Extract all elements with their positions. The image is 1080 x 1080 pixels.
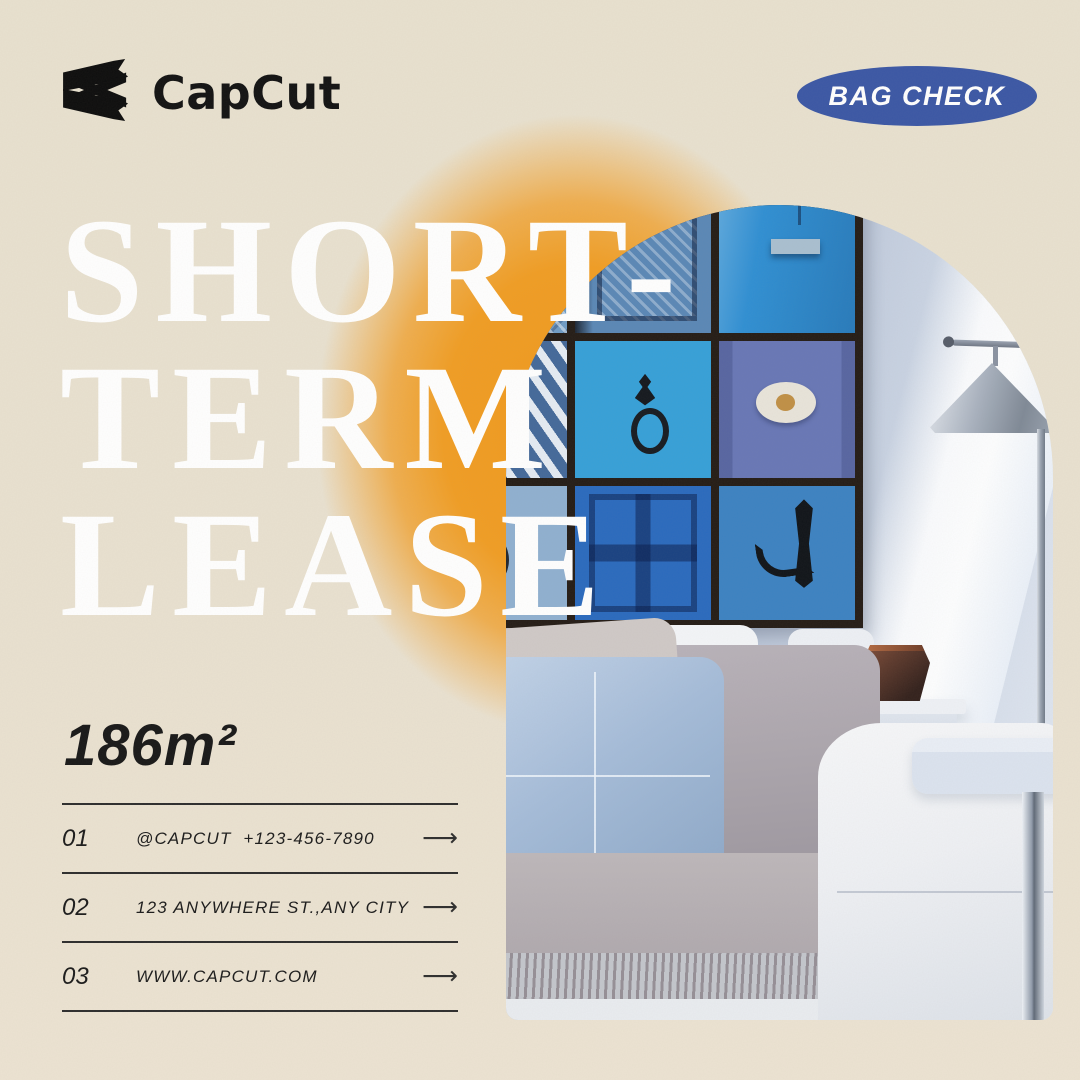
contact-handle-phone: @CAPCUT +123-456-7890 [136,829,422,849]
arrow-right-icon: ⟶ [422,961,458,991]
headline-line-2: TERM [60,345,688,492]
row-number: 03 [62,963,136,991]
arrow-right-icon: ⟶ [422,823,458,853]
contact-row: 03 WWW.CAPCUT.COM ⟶ [62,941,458,1010]
capcut-logo-icon [60,58,136,127]
headline: SHORT- TERM LEASE [60,198,688,639]
contact-address: 123 ANYWHERE ST.,ANY CITY [136,898,422,918]
contact-website: WWW.CAPCUT.COM [136,967,422,987]
area-value: 186m² [64,712,237,779]
row-number: 01 [62,825,136,853]
capcut-logo: CapCut [60,58,341,127]
poster-canvas: CapCut BAG CHECK SHORT- TERM LEASE 186m² [0,0,1080,1080]
contact-row: 02 123 ANYWHERE ST.,ANY CITY ⟶ [62,872,458,941]
contact-list: 01 @CAPCUT +123-456-7890 ⟶ 02 123 ANYWHE… [62,803,458,1012]
door-tile-handle [719,486,855,620]
door-tile-plate [719,341,855,478]
contact-row: 01 @CAPCUT +123-456-7890 ⟶ [62,803,458,872]
bag-check-badge: BAG CHECK [797,66,1037,126]
floating-table [912,738,1053,794]
row-number: 02 [62,894,136,922]
table-chrome-leg [1022,792,1044,1020]
headline-line-1: SHORT- [60,198,688,345]
floor-lamp-stem [993,346,998,366]
arrow-right-icon: ⟶ [422,892,458,922]
bag-check-badge-label: BAG CHECK [828,81,1005,112]
headline-line-3: LEASE [60,492,688,639]
door-tile-metal [719,205,855,333]
capcut-wordmark: CapCut [152,66,341,120]
